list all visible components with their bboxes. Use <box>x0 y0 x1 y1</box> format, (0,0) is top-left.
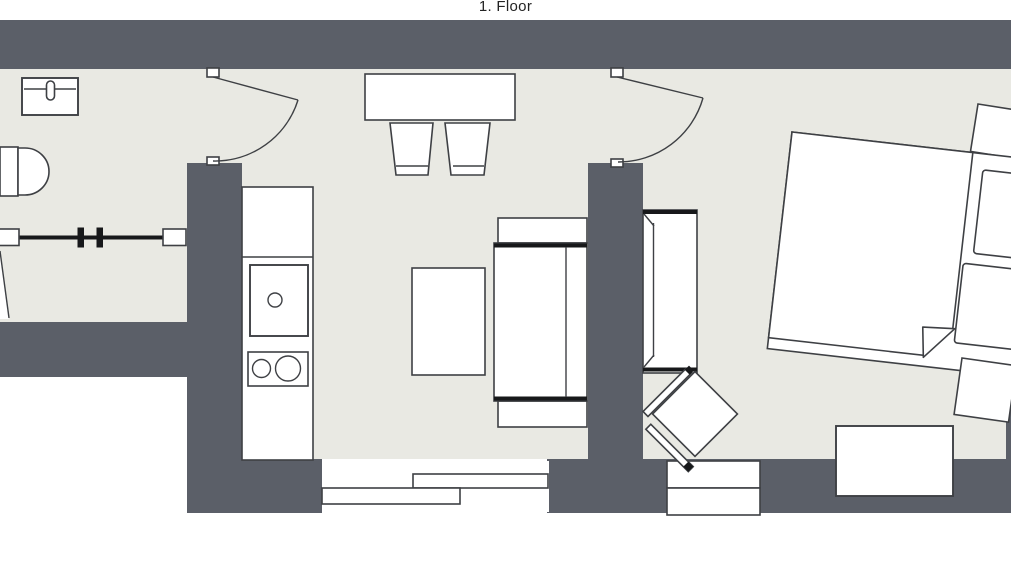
wall-bathroom-bottom <box>0 322 187 377</box>
wall-bathroom-kitchen <box>187 163 242 513</box>
bedroom-window <box>667 461 760 515</box>
washbasin-tap-icon <box>47 81 55 100</box>
sofa-armrest-top <box>498 218 587 243</box>
shower-screen-cap-left <box>0 229 19 246</box>
bed-duvet <box>769 132 973 358</box>
sink <box>250 265 308 336</box>
chest <box>836 426 953 496</box>
toilet-tank <box>0 147 18 196</box>
wall-bottom-left <box>242 459 322 513</box>
pillow-2 <box>954 263 1011 350</box>
window-pane-upper <box>413 474 548 488</box>
shower-screen-cap-right <box>163 229 186 246</box>
sofa-armrest-bottom <box>498 401 587 427</box>
wardrobe <box>643 210 697 373</box>
wall-top <box>0 20 1011 69</box>
double-bed <box>767 132 1011 383</box>
sofa-seat <box>494 243 587 401</box>
window-pane-lower <box>322 488 460 504</box>
coffee-table <box>412 268 485 375</box>
cooktop <box>248 352 308 386</box>
living-window <box>322 461 549 512</box>
shower-screen-hinge-1 <box>78 228 85 248</box>
nightstand-head <box>970 104 1011 159</box>
door-jamb-top <box>611 68 623 77</box>
floor-plan <box>0 0 1011 570</box>
chair-1 <box>390 123 433 175</box>
nightstand-foot <box>954 358 1011 422</box>
kitchen <box>242 187 313 460</box>
door-jamb-top <box>207 68 219 77</box>
nightstand-bottom-right <box>954 358 1011 422</box>
door-jamb-bottom <box>611 159 623 167</box>
chair-2 <box>445 123 490 175</box>
dining-table <box>365 74 515 120</box>
nightstand-top-right <box>970 104 1011 159</box>
shower-screen-hinge-2 <box>97 228 104 248</box>
window-pane-2 <box>667 488 760 515</box>
